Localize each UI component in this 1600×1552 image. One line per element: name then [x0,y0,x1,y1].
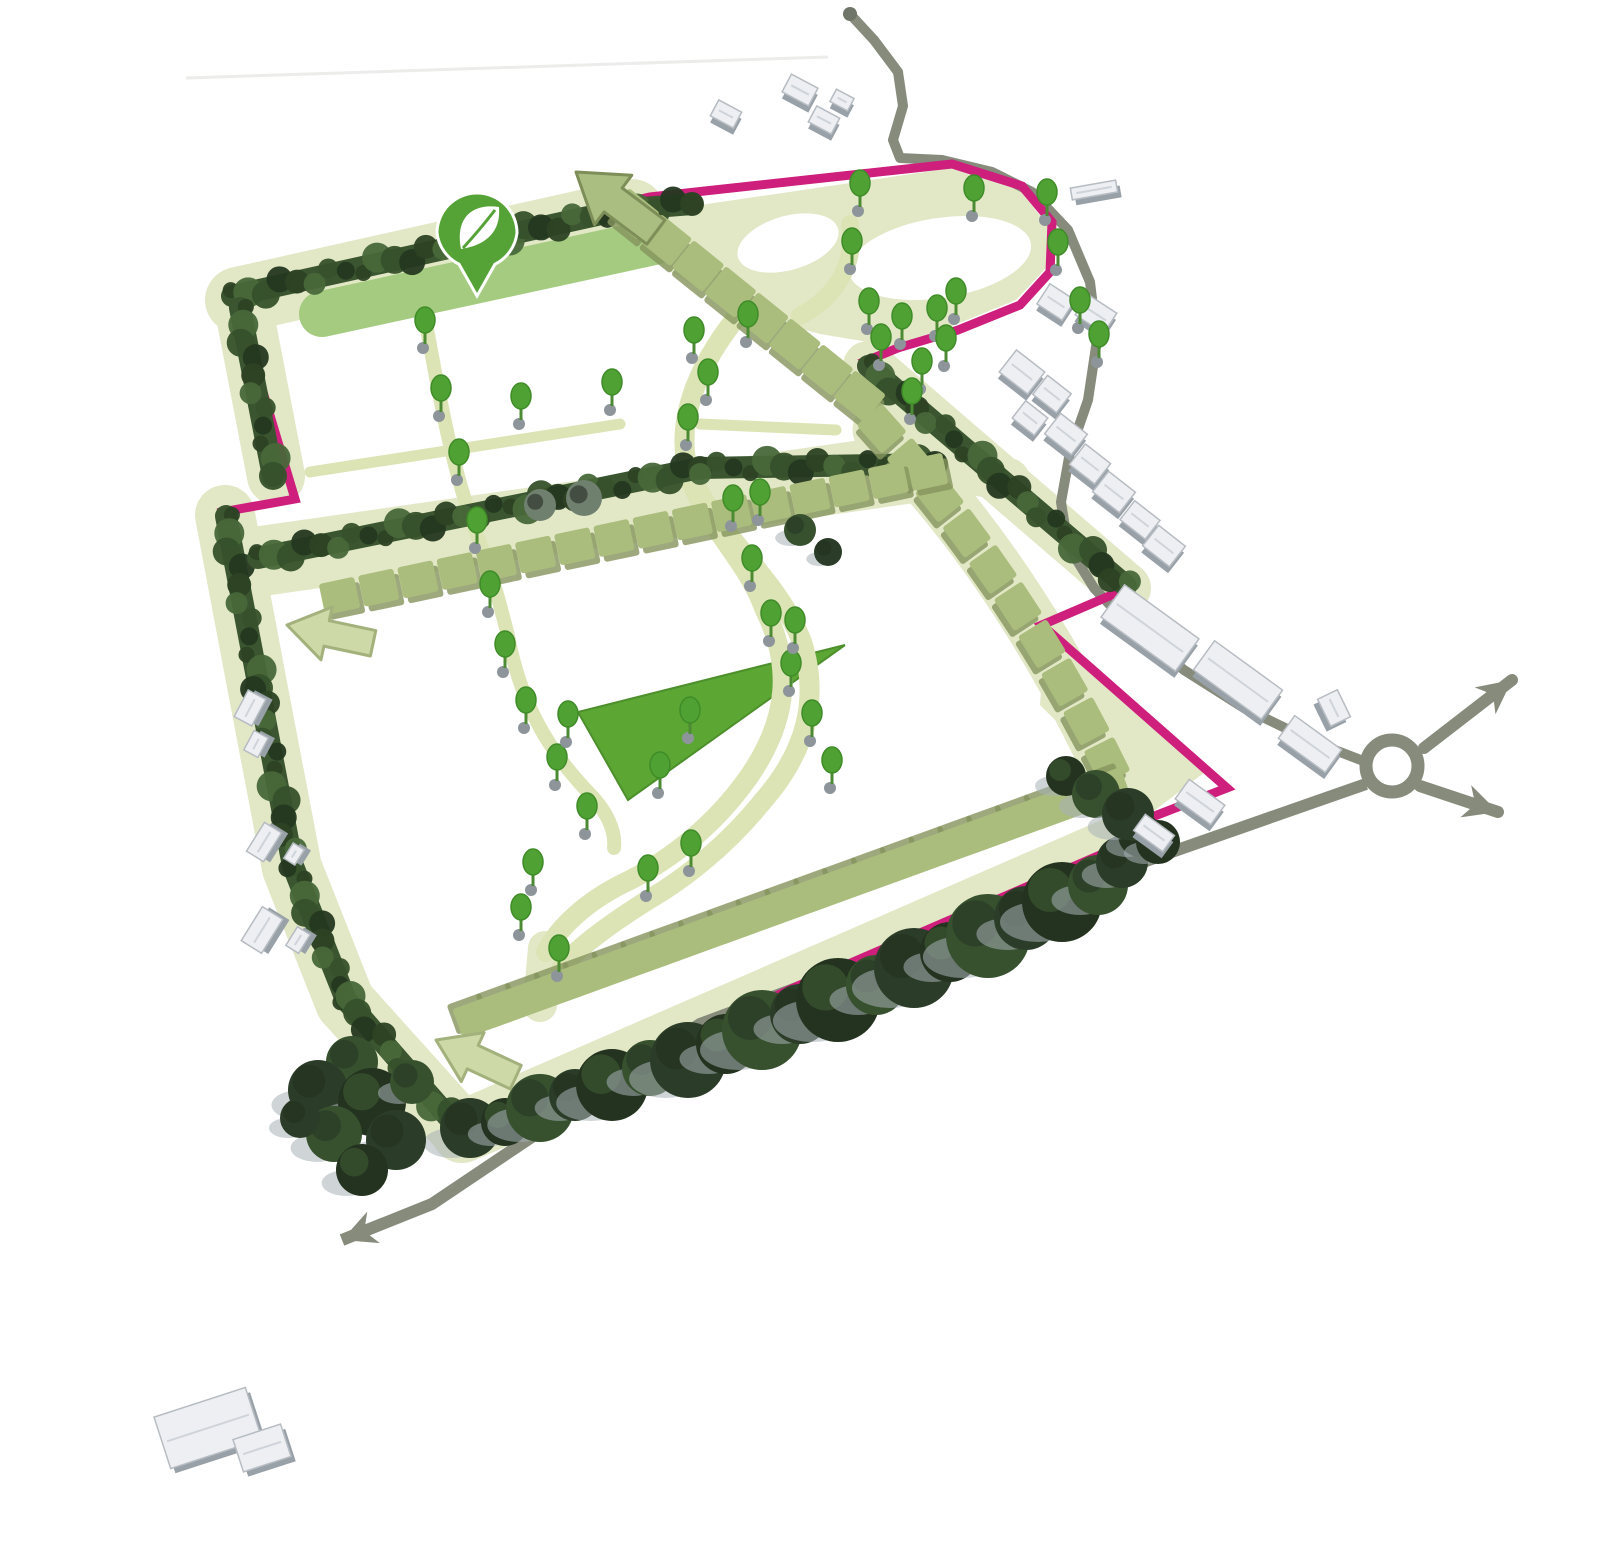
hedge-top-blob [561,203,583,225]
tree-base-dot [894,338,906,350]
tree-base-dot [752,514,764,526]
tree-crown [738,301,758,327]
tree-crown [684,317,704,343]
tree-crown [431,375,451,401]
hedge-northeast-blob [915,412,937,434]
tree-crown [842,228,862,254]
tree-crown [511,383,531,409]
tree-base-dot [686,352,698,364]
tree-crown [742,545,762,571]
tree-crown [1070,287,1090,313]
tree-crown [449,439,469,465]
dark-tree-texture [786,516,804,534]
plot-path-east [700,424,836,430]
hedge-top-blob [318,258,338,278]
tree-base-dot [417,342,429,354]
tree-base-dot [725,520,737,532]
tree-base-dot [873,359,885,371]
hedge-left-lower-blob [226,592,248,614]
road-start-dot [843,7,857,21]
tree-crown [781,650,801,676]
existing-building [1070,180,1121,206]
hedge-left-upper-blob [256,398,276,418]
tree-base-dot [652,787,664,799]
dark-tree-texture [371,1115,404,1148]
tree-base-dot [549,779,561,791]
tree-base-dot [744,580,756,592]
hedge-northeast-blob [1026,507,1046,527]
hedge-left-lower-blob [242,608,262,628]
tree-crown [946,278,966,304]
tree-crown [859,288,879,314]
hedge-middle-blob [613,481,631,499]
tree-crown [936,325,956,351]
hedge-middle-blob [707,452,727,472]
tree-base-dot [604,404,616,416]
tree-crown [761,600,781,626]
tree-crown [892,303,912,329]
dark-tree-texture [343,1073,380,1110]
hedge-middle-blob [725,458,743,476]
tree-crown [912,348,932,374]
tree-base-dot [451,474,463,486]
hedge-left-upper-blob [254,417,272,435]
tree-base-dot [640,890,652,902]
tree-crown [822,747,842,773]
tree-crown [523,849,543,875]
tree-base-dot [966,210,978,222]
tree-crown [577,793,597,819]
tree-base-dot [680,439,692,451]
tree-base-dot [904,413,916,425]
tree-base-dot [525,884,537,896]
existing-building [1312,690,1352,732]
dark-tree-texture [283,1101,305,1123]
loop-path-west [546,307,783,952]
hedge-left-upper-blob [259,462,287,490]
tree-crown [516,687,536,713]
dark-tree-texture [816,540,831,555]
hedge-northeast-blob [1047,510,1065,528]
tree-base-dot [844,263,856,275]
hedge-left-upper-blob [240,382,262,404]
tree-base-dot [1072,322,1084,334]
tree-base-dot [824,782,836,794]
tree-base-dot [804,735,816,747]
grey-tree-texture [570,485,588,503]
tree-base-dot [787,642,799,654]
tree-base-dot [682,732,694,744]
tree-base-dot [513,418,525,430]
tree-crown [698,359,718,385]
tree-base-dot [579,828,591,840]
existing-building [707,100,744,135]
dark-tree-texture [330,1040,359,1069]
hedge-middle-blob [342,523,362,543]
tree-crown [964,175,984,201]
tree-crown [802,700,822,726]
tree-base-dot [469,542,481,554]
existing-building [1190,641,1285,726]
tree-crown [480,571,500,597]
tree-crown [467,507,487,533]
tree-base-dot [497,666,509,678]
tree-base-dot [1091,356,1103,368]
tree-crown [927,295,947,321]
dark-tree-texture [1106,792,1135,821]
dark-tree-texture [340,1148,369,1177]
tree-base-dot [938,360,950,372]
tree-crown [681,830,701,856]
dark-tree-texture [1049,759,1071,781]
hedge-middle-blob [485,495,503,513]
roundabout [1366,740,1418,792]
tree-crown [1089,321,1109,347]
tree-base-dot [560,736,572,748]
tree-crown [750,479,770,505]
masterplan-canvas [0,0,1600,1552]
tree-crown [549,935,569,961]
tree-base-dot [948,313,960,325]
hedge-top-right-blob [680,192,704,216]
tree-crown [678,404,698,430]
tree-base-dot [433,410,445,422]
tree-crown [602,369,622,395]
tree-crown [723,485,743,511]
tree-base-dot [1039,214,1051,226]
tree-base-dot [683,865,695,877]
tree-crown [680,697,700,723]
tree-base-dot [482,606,494,618]
tree-base-dot [740,336,752,348]
hedge-top-blob [337,262,355,280]
tree-crown [495,631,515,657]
dark-tree-texture [393,1063,417,1087]
existing-building [779,74,820,112]
tree-crown [558,701,578,727]
tree-crown [871,324,891,350]
hedge-northeast-blob [945,430,963,448]
tree-crown [638,855,658,881]
tree-base-dot [518,722,530,734]
dark-tree-texture [1076,774,1102,800]
tree-base-dot [783,685,795,697]
masterplan-svg [0,0,1600,1552]
hedge-left-lower-blob [330,958,350,978]
tree-crown [547,744,567,770]
tree-base-dot [852,205,864,217]
tree-crown [511,894,531,920]
tree-crown [902,378,922,404]
tree-crown [415,307,435,333]
hedge-northeast-blob [1098,568,1122,592]
dark-tree-texture [293,1065,326,1098]
tree-crown [785,607,805,633]
grey-tree-texture [527,494,543,510]
tree-crown [1037,179,1057,205]
hedge-middle-blob [360,527,378,545]
tree-base-dot [700,394,712,406]
tree-base-dot [513,929,525,941]
tree-base-dot [763,635,775,647]
tree-crown [850,170,870,196]
tree-crown [1048,229,1068,255]
tree-base-dot [551,970,563,982]
tree-crown [650,752,670,778]
tree-base-dot [1050,264,1062,276]
hedge-left-lower-blob [240,627,258,645]
horizon-line [186,57,828,78]
